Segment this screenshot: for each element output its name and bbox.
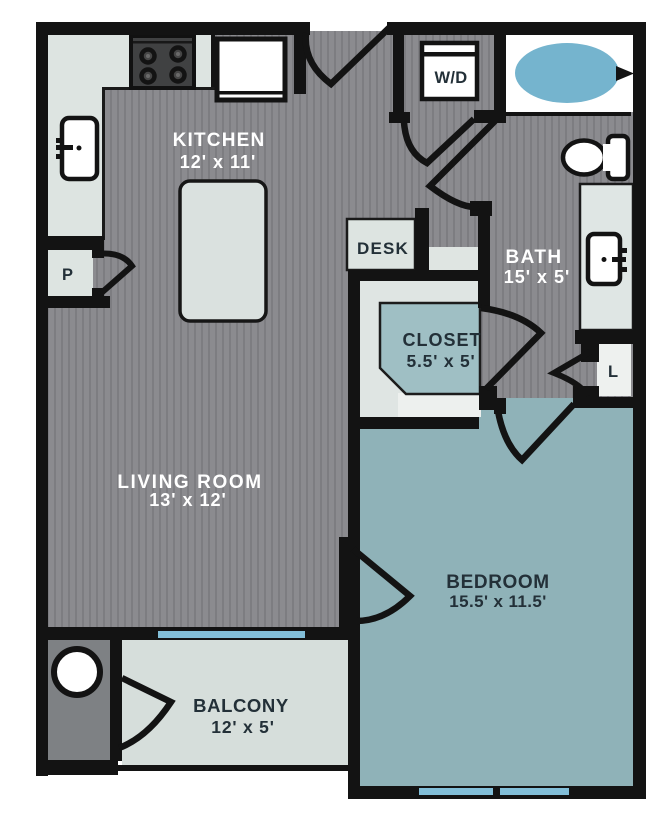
svg-text:BEDROOM: BEDROOM bbox=[446, 572, 549, 593]
svg-text:DESK: DESK bbox=[357, 239, 409, 258]
svg-text:BATH: BATH bbox=[506, 247, 563, 268]
svg-text:P: P bbox=[62, 266, 73, 284]
svg-text:L: L bbox=[608, 363, 618, 381]
svg-text:15.5' x 11.5': 15.5' x 11.5' bbox=[449, 592, 546, 611]
svg-text:12' x 11': 12' x 11' bbox=[180, 152, 257, 172]
svg-text:5.5' x 5': 5.5' x 5' bbox=[406, 351, 475, 371]
svg-text:KITCHEN: KITCHEN bbox=[173, 130, 266, 151]
svg-text:CLOSET: CLOSET bbox=[402, 330, 481, 350]
svg-text:13' x 12': 13' x 12' bbox=[149, 490, 227, 510]
svg-text:12' x 5': 12' x 5' bbox=[211, 717, 274, 737]
svg-text:W/D: W/D bbox=[435, 69, 468, 87]
svg-text:15' x 5': 15' x 5' bbox=[504, 267, 571, 287]
svg-text:BALCONY: BALCONY bbox=[193, 695, 289, 716]
